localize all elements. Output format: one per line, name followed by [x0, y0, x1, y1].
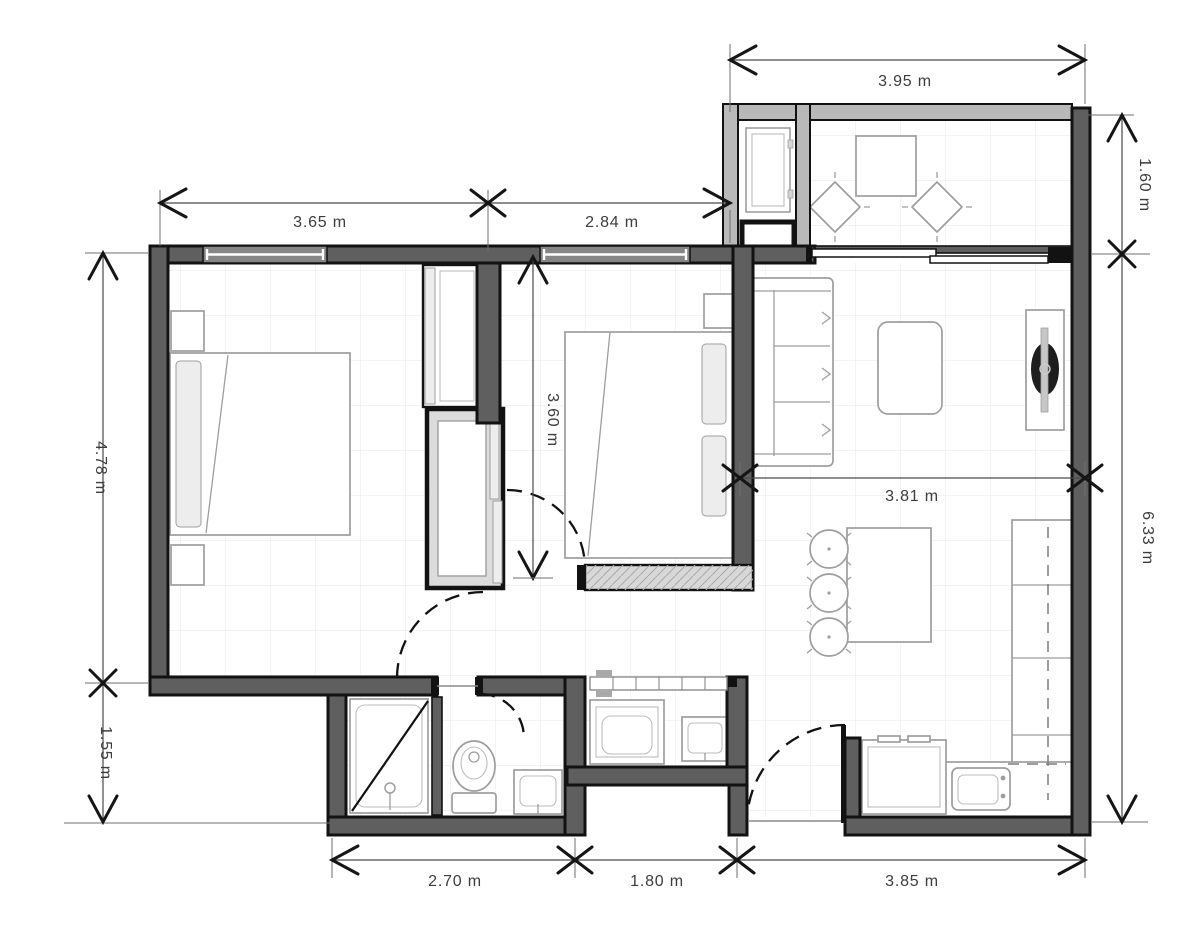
window-bedroom1 [203, 246, 327, 263]
dim-label: 3.65 m [293, 214, 347, 231]
fridge [862, 740, 946, 814]
wall-bedroom1-bottom [150, 677, 437, 695]
dining-table [847, 528, 931, 642]
dim-bottom: 2.70 m 1.80 m 3.85 m [332, 838, 1085, 890]
dim-label: 2.70 m [428, 873, 482, 890]
toilet-tank [452, 793, 496, 813]
wall-laundry-bottom [567, 767, 747, 785]
wall-bathroom-laundry [565, 677, 585, 835]
window-bedroom2 [540, 246, 690, 263]
faucet-icon [1001, 776, 1006, 781]
balcony-closet-wall [796, 104, 810, 250]
dim-label: 4.78 m [92, 441, 109, 495]
bed-pillow [702, 436, 726, 516]
utility-unit [746, 128, 790, 212]
wardrobe-sliding-door [493, 501, 502, 583]
dining-furniture [807, 528, 931, 656]
balcony-wall-top [723, 104, 1072, 120]
door-jamb [727, 677, 737, 687]
dim-label: 1.80 m [630, 873, 684, 890]
track-clamp [596, 690, 612, 697]
wall-bathroom-left [328, 695, 346, 835]
wall-closet-divider [477, 263, 500, 423]
wardrobe-sliding-door [490, 417, 499, 499]
tv-stand-bar [1041, 328, 1048, 412]
wardrobe-interior [438, 421, 486, 576]
floor-plan-canvas: 3.95 m 3.65 m 2.84 m 1.60 m 6.33 m [0, 0, 1177, 932]
wall-bedroom2-bottom-hatch [585, 565, 753, 590]
dim-label: 1.60 m [1136, 158, 1153, 212]
dim-bedroom-widths: 3.65 m 2.84 m [160, 189, 730, 252]
track-clamp [596, 670, 612, 677]
fridge-handle [908, 736, 930, 742]
nightstand [171, 311, 204, 351]
wall-bedroom2-living [733, 246, 753, 590]
dim-label: 6.33 m [1139, 511, 1156, 565]
nightstand [171, 545, 204, 585]
bed-pillow [702, 344, 726, 424]
floor-plan-page: 3.95 m 3.65 m 2.84 m 1.60 m 6.33 m [0, 0, 1177, 932]
closet-sliding-door [425, 268, 435, 404]
dim-balcony-width: 3.95 m [730, 44, 1085, 112]
faucet-icon [1001, 794, 1006, 799]
sofa [750, 278, 833, 466]
door-jamb [577, 565, 586, 590]
coffee-table [878, 322, 942, 414]
wall-bottom-right [845, 817, 1090, 835]
fridge-handle [878, 736, 900, 742]
dim-label: 3.60 m [544, 393, 561, 447]
wall-left [150, 246, 168, 695]
toilet-bowl [453, 741, 495, 791]
shower-partition-wall [432, 697, 442, 815]
wall-bathroom-bottom [328, 817, 585, 835]
bed-pillow [176, 361, 201, 527]
entrance-door-leaf [841, 725, 846, 823]
exterior-mask-entrance [585, 785, 729, 817]
bedroom-2-furniture [565, 294, 733, 558]
wall-entrance-wing [729, 785, 747, 835]
dim-label: 3.85 m [885, 873, 939, 890]
dim-label: 3.81 m [885, 488, 939, 505]
dim-label: 2.84 m [585, 214, 639, 231]
dim-label: 1.55 m [97, 726, 114, 780]
balcony-table [856, 136, 916, 196]
nightstand [704, 294, 733, 328]
dim-label: 3.95 m [878, 73, 932, 90]
exterior-mask-left [168, 695, 328, 840]
